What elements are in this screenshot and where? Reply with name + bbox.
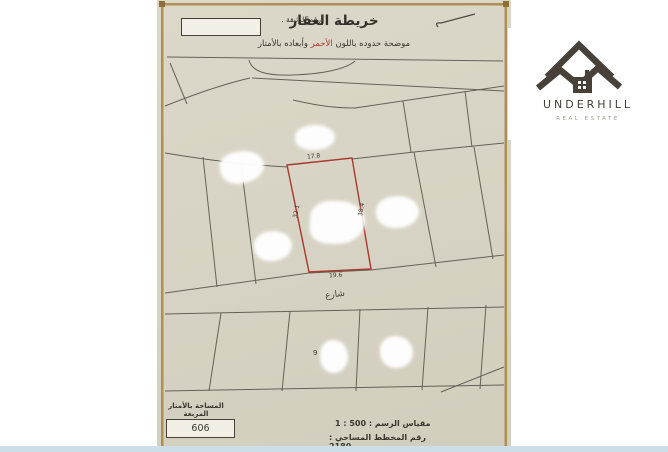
dimension-label-bottom: 19.6 [329, 272, 343, 280]
area-value-box: 606 [166, 419, 235, 438]
plot-number-label: 9 [313, 349, 317, 357]
dimension-label-top: 17.8 [307, 152, 321, 160]
scale-text: مقياس الرسم : 500 : 1 [335, 419, 435, 428]
logo-tagline: REAL ESTATE [508, 116, 668, 122]
map-title: خريطة العقار [157, 13, 511, 29]
roofs-logo-icon [528, 34, 648, 98]
page: رقم الوثيقة . خريطة العقار موضحة حدوده ب… [0, 0, 668, 452]
page-bottom-strip [0, 446, 668, 452]
plan-number-text: رقم المخطط المساحي : 2180 [329, 433, 435, 447]
area-label: المساحة بالأمتار المربعة [157, 402, 235, 418]
map-subtitle: موضحة حدوده باللون الأحمر وأبعاده بالأمت… [157, 39, 511, 49]
logo-name: UNDERHILL [508, 98, 668, 111]
subtitle-red-word: الأحمر [311, 39, 333, 49]
property-map-document: رقم الوثيقة . خريطة العقار موضحة حدوده ب… [157, 0, 511, 447]
subtitle-prefix: موضحة حدوده باللون [335, 39, 410, 49]
subtitle-suffix: وأبعاده بالأمتار [258, 39, 308, 49]
underhill-logo: UNDERHILL REAL ESTATE [508, 28, 668, 140]
